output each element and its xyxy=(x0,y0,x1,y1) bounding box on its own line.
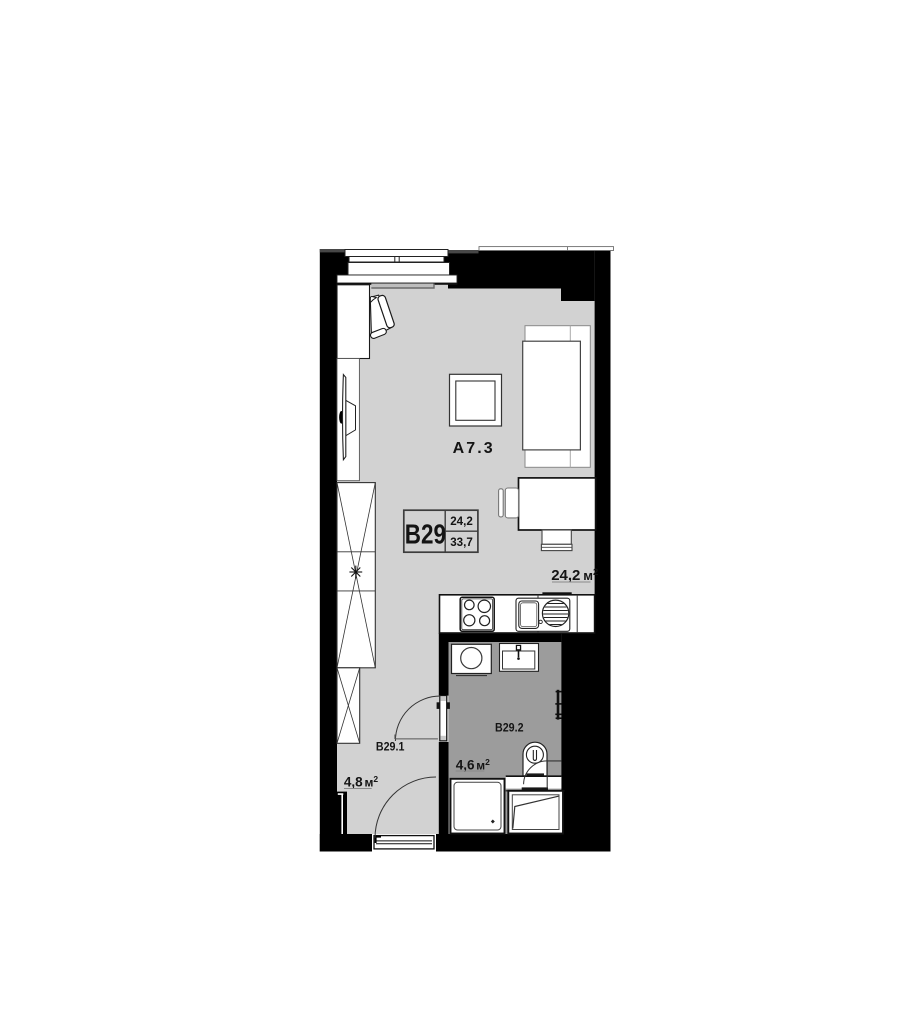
svg-text:B29.1: B29.1 xyxy=(376,741,405,753)
svg-text:A7.3: A7.3 xyxy=(453,440,495,457)
svg-text:B29.2: B29.2 xyxy=(495,722,524,734)
svg-text:B29: B29 xyxy=(405,519,446,550)
svg-text:33,7: 33,7 xyxy=(450,536,473,549)
svg-text:24,2м2: 24,2м2 xyxy=(551,567,598,584)
svg-text:24,2: 24,2 xyxy=(450,515,473,528)
svg-text:4,6м2: 4,6м2 xyxy=(456,757,490,772)
svg-text:4,8м2: 4,8м2 xyxy=(344,774,378,789)
